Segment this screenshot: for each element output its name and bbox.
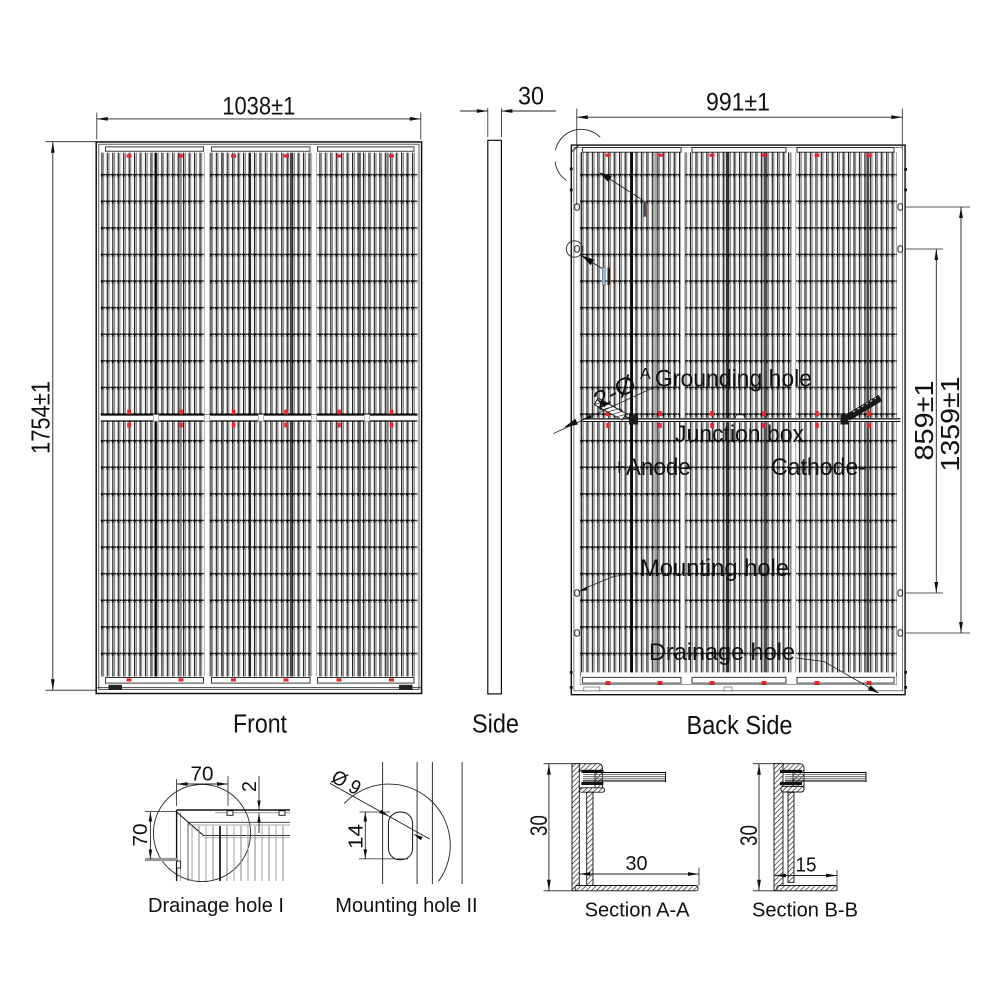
svg-text:1038±1: 1038±1 [222, 93, 295, 121]
svg-text:2: 2 [239, 781, 261, 792]
svg-text:A: A [640, 366, 651, 383]
svg-text:30: 30 [518, 83, 544, 111]
svg-text:Mounting hole II: Mounting hole II [335, 895, 477, 917]
svg-text:Front: Front [233, 710, 287, 738]
svg-text:Section A-A: Section A-A [585, 899, 690, 922]
svg-text:Mounting hole: Mounting hole [640, 555, 789, 582]
svg-text:Drainage hole: Drainage hole [649, 639, 795, 666]
svg-text:30: 30 [626, 853, 648, 875]
svg-text:991±1: 991±1 [706, 89, 770, 117]
svg-text:Section B-B: Section B-B [752, 899, 858, 922]
svg-text:30: 30 [736, 825, 763, 846]
svg-text:+Anode: +Anode [613, 454, 691, 481]
svg-text:Back Side: Back Side [687, 712, 793, 740]
svg-text:Side: Side [472, 710, 519, 738]
svg-text:1754±1: 1754±1 [26, 381, 56, 454]
svg-text:30: 30 [526, 815, 553, 836]
svg-text:70: 70 [130, 824, 152, 847]
svg-text:15: 15 [796, 855, 817, 877]
svg-text:1359±1: 1359±1 [935, 377, 965, 472]
svg-text:Drainage hole I: Drainage hole I [148, 895, 284, 917]
svg-text:Cathode-: Cathode- [771, 454, 866, 481]
svg-text:70: 70 [191, 764, 214, 786]
svg-text:Grounding hole: Grounding hole [655, 366, 812, 393]
svg-text:14: 14 [345, 824, 367, 849]
svg-text:Junction box: Junction box [675, 421, 804, 448]
